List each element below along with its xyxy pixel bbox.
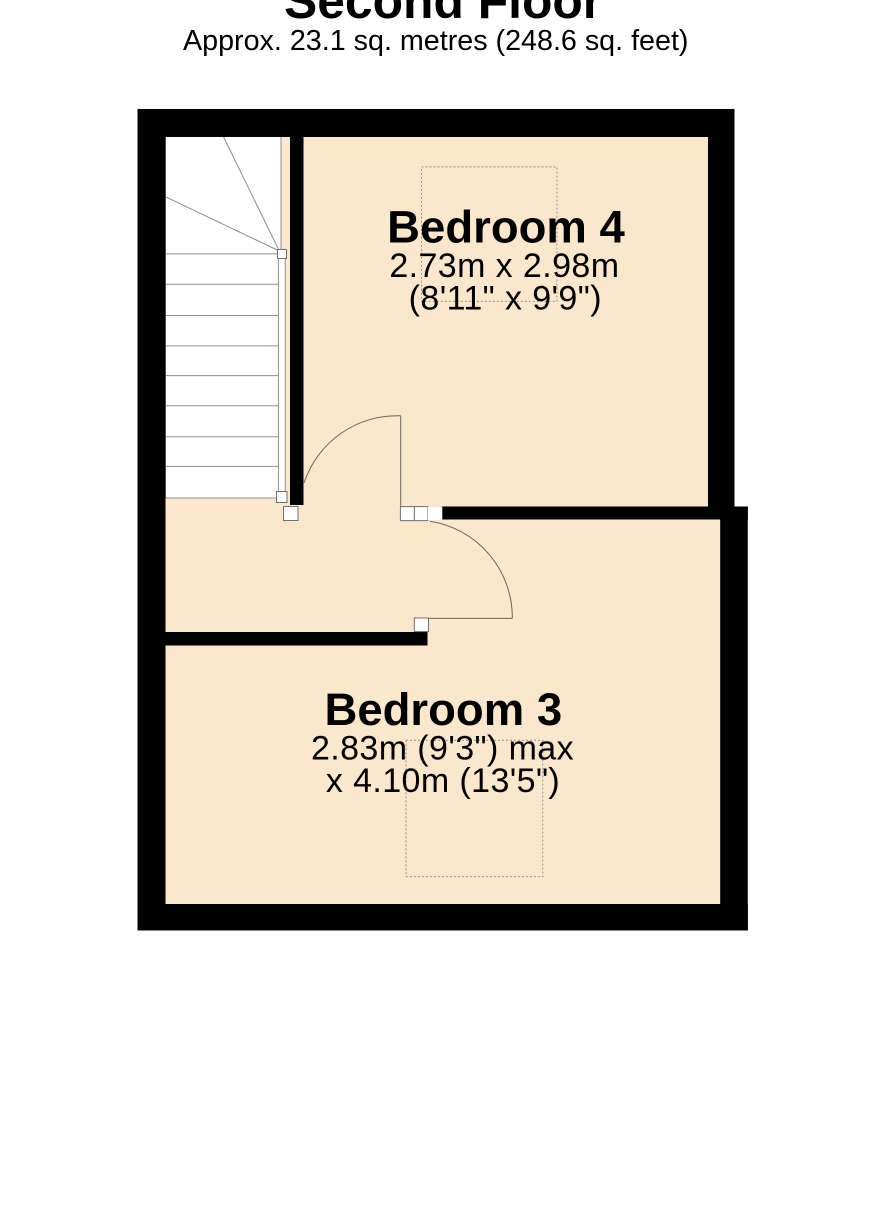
svg-text:Approx. 23.1 sq. metres (248.6: Approx. 23.1 sq. metres (248.6 sq. feet)	[183, 25, 688, 57]
svg-text:Bedroom 4: Bedroom 4	[387, 202, 625, 253]
svg-text:(8'11" x 9'9"): (8'11" x 9'9")	[409, 280, 602, 318]
svg-text:x 4.10m (13'5"): x 4.10m (13'5")	[326, 762, 560, 800]
svg-text:Bedroom 3: Bedroom 3	[324, 684, 562, 735]
